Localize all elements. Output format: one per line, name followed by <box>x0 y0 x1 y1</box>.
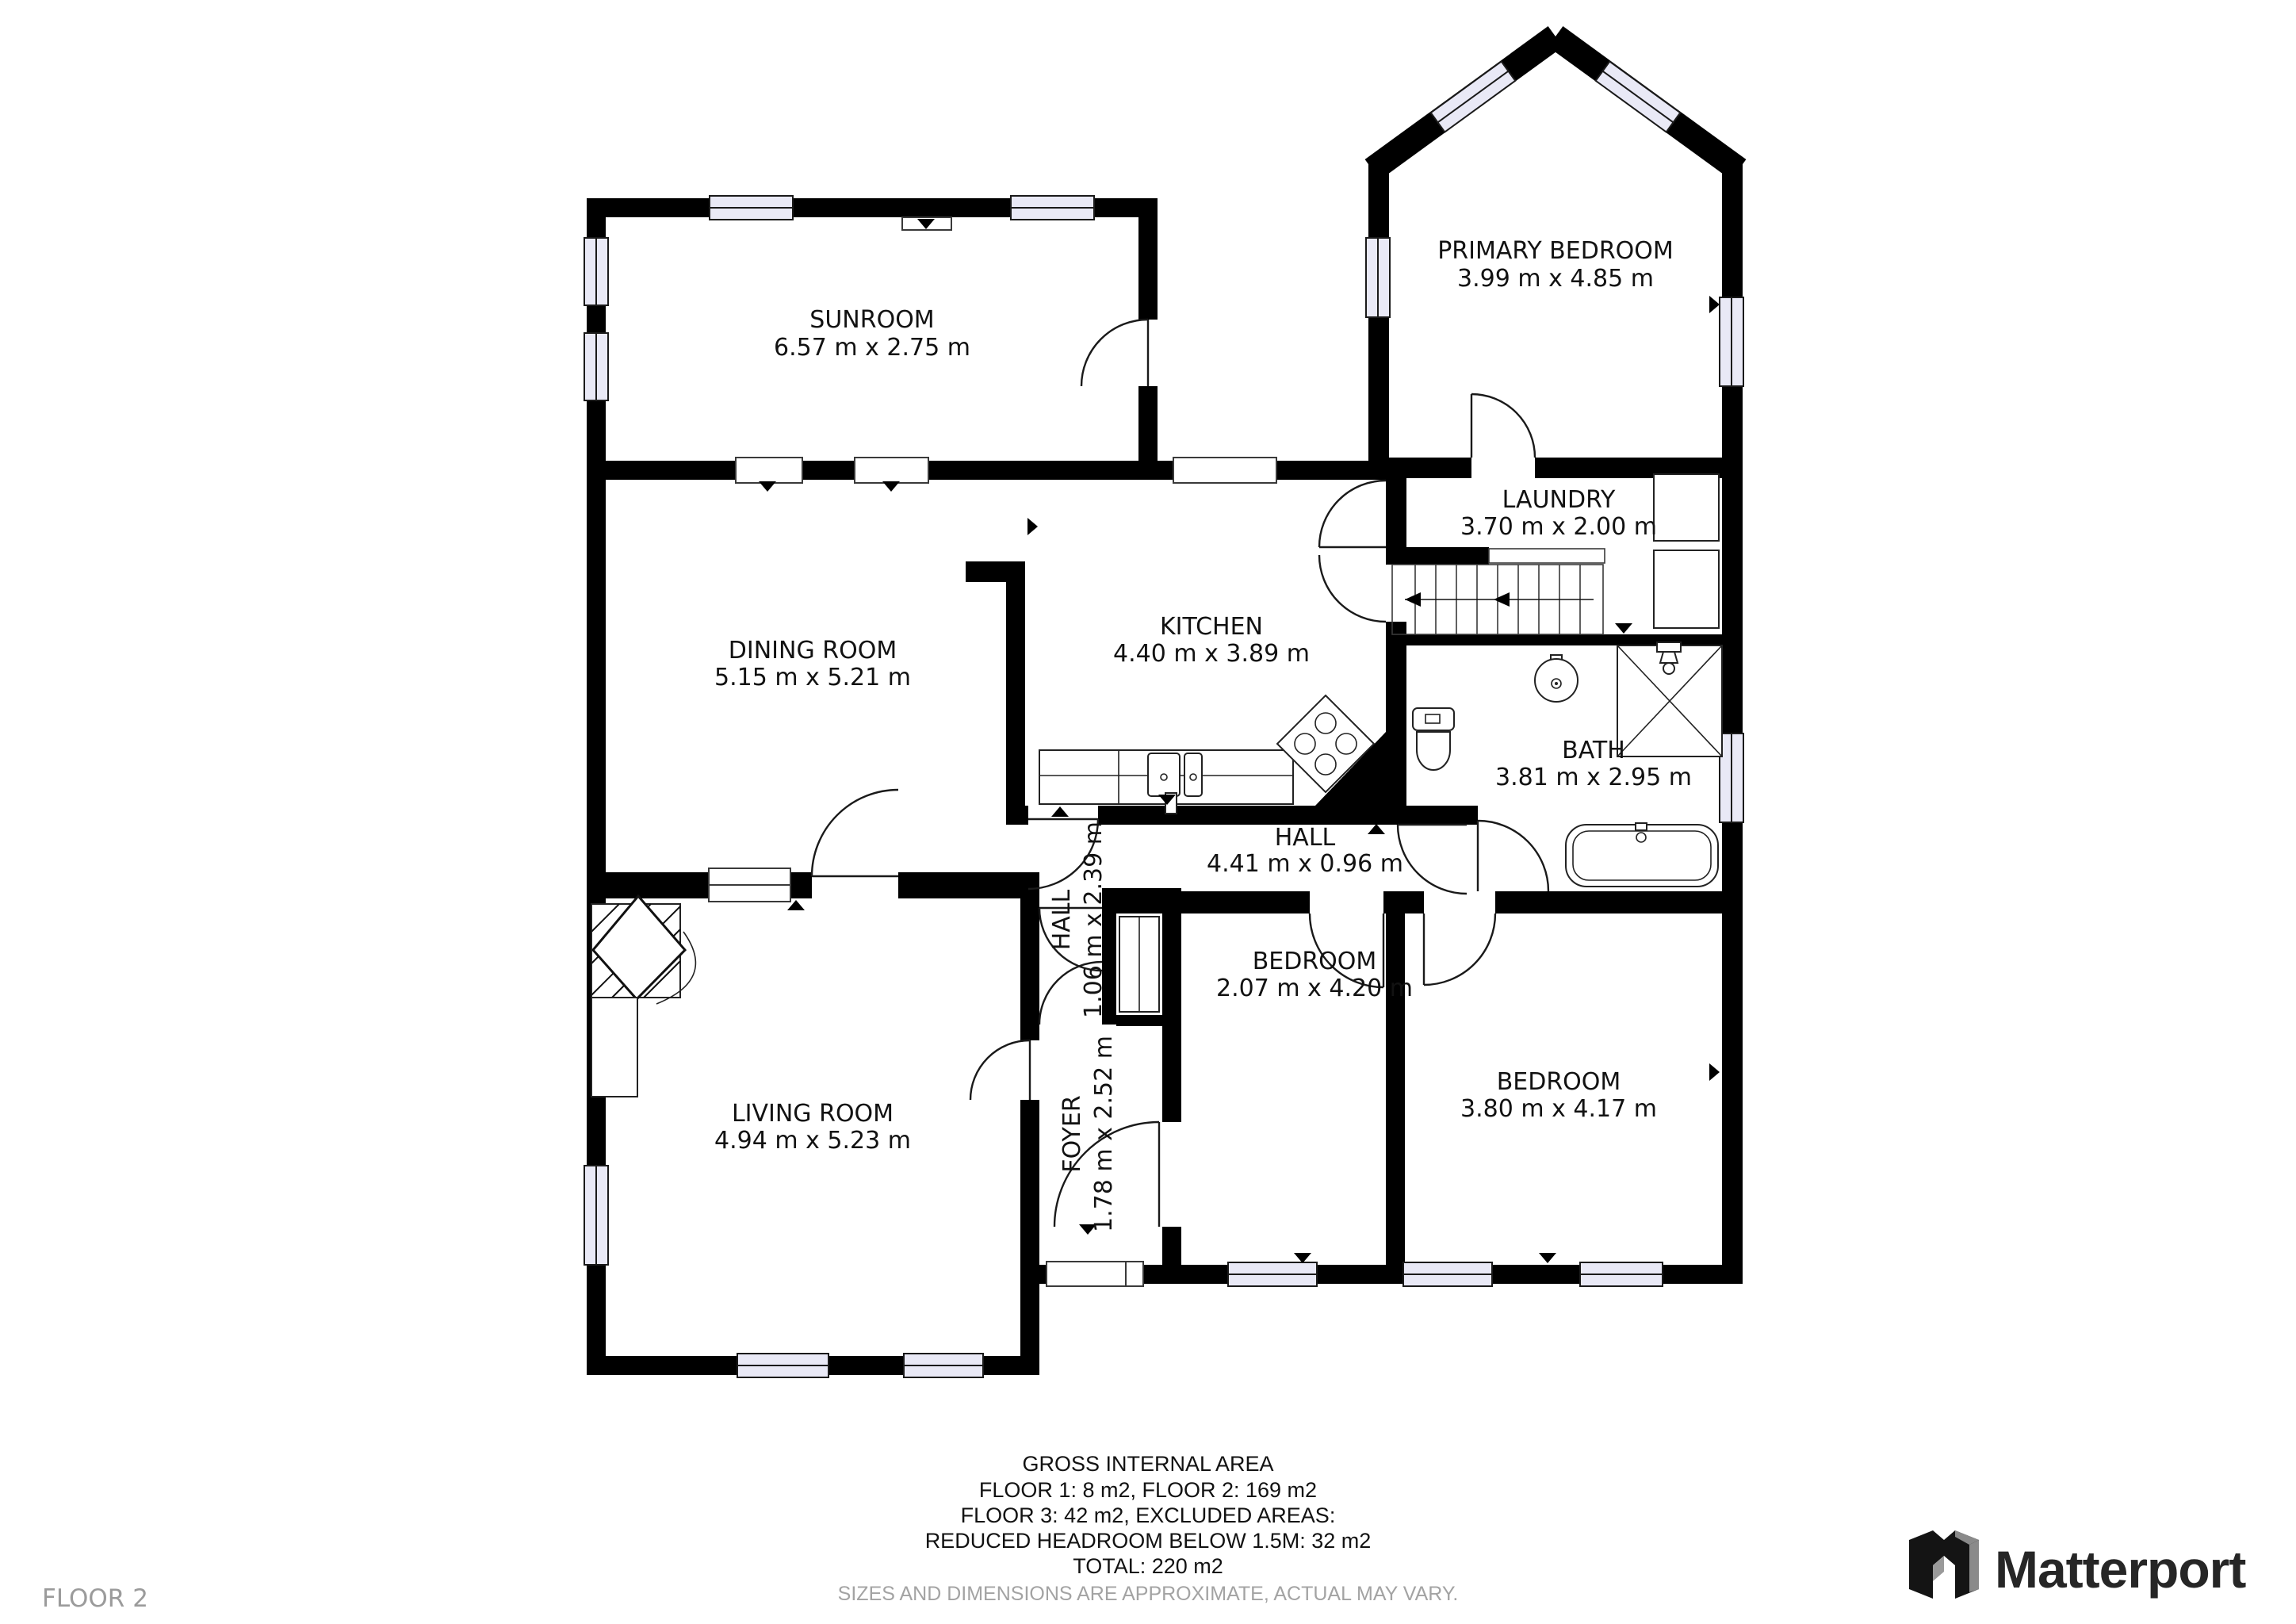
footer-total: TOTAL: 220 m2 <box>1073 1554 1223 1578</box>
room-labels: SUNROOM 6.57 m x 2.75 m PRIMARY BEDROOM … <box>714 237 1692 1232</box>
room-label-hall-vertical: HALL <box>1048 889 1076 950</box>
room-dims-foyer: 1.78 m x 2.52 m <box>1090 1036 1118 1232</box>
footer-headroom: REDUCED HEADROOM BELOW 1.5M: 32 m2 <box>925 1529 1372 1553</box>
laundry-appliances <box>1654 474 1719 628</box>
stairs-direction-arrow <box>1494 592 1510 607</box>
door-kitchen-stairs <box>1319 481 1386 622</box>
room-dims-bedroom-small: 2.07 m x 4.20 m <box>1216 975 1413 1002</box>
room-dims-laundry: 3.70 m x 2.00 m <box>1460 513 1657 541</box>
door-bath <box>1478 821 1548 891</box>
room-label-bedroom-small: BEDROOM <box>1253 948 1377 975</box>
floorplan-svg: SUNROOM 6.57 m x 2.75 m PRIMARY BEDROOM … <box>0 0 2296 1624</box>
footer-title: GROSS INTERNAL AREA <box>1022 1452 1273 1476</box>
room-label-foyer: FOYER <box>1058 1095 1086 1172</box>
room-label-bath: BATH <box>1562 737 1625 764</box>
floorplan-page: SUNROOM 6.57 m x 2.75 m PRIMARY BEDROOM … <box>0 0 2296 1624</box>
room-dims-kitchen: 4.40 m x 3.89 m <box>1113 640 1310 668</box>
stairs-direction-arrow <box>1405 592 1421 607</box>
door-bedroom-large <box>1424 913 1495 985</box>
room-label-dining-room: DINING ROOM <box>729 637 897 665</box>
room-label-bedroom-large: BEDROOM <box>1497 1068 1621 1096</box>
room-dims-primary-bedroom: 3.99 m x 4.85 m <box>1457 265 1654 293</box>
room-label-sunroom: SUNROOM <box>809 306 934 334</box>
footer-area-summary: GROSS INTERNAL AREA FLOOR 1: 8 m2, FLOOR… <box>838 1452 1459 1605</box>
door-living-foyer <box>970 1040 1030 1100</box>
room-dims-living-room: 4.94 m x 5.23 m <box>714 1127 911 1155</box>
bathtub-icon <box>1566 823 1718 887</box>
kitchen-counter <box>1039 750 1293 814</box>
matterport-logo: Matterport <box>1909 1530 2246 1599</box>
floor-label: FLOOR 2 <box>42 1584 148 1613</box>
matterport-logo-text: Matterport <box>1995 1540 2246 1599</box>
closet-shelf <box>1119 917 1159 1012</box>
door-hall-bath-corridor <box>1398 825 1467 894</box>
pedestal-sink-icon <box>1535 655 1578 702</box>
toilet-icon <box>1413 708 1454 770</box>
room-label-hall: HALL <box>1275 824 1336 852</box>
door-living-dining <box>812 790 898 876</box>
gable-walls <box>1372 36 1739 170</box>
room-dims-hall: 4.41 m x 0.96 m <box>1207 850 1403 878</box>
room-label-primary-bedroom: PRIMARY BEDROOM <box>1437 237 1674 265</box>
footer-disclaimer: SIZES AND DIMENSIONS ARE APPROXIMATE, AC… <box>838 1583 1459 1605</box>
door-primary-bedroom <box>1471 394 1535 458</box>
shower-icon <box>1617 642 1722 756</box>
fireplace-icon <box>591 896 695 1097</box>
room-label-living-room: LIVING ROOM <box>732 1100 894 1128</box>
room-dims-bath: 3.81 m x 2.95 m <box>1495 764 1692 791</box>
matterport-logo-icon <box>1909 1530 1979 1599</box>
room-label-kitchen: KITCHEN <box>1160 613 1263 641</box>
footer-floor3: FLOOR 3: 42 m2, EXCLUDED AREAS: <box>961 1503 1336 1527</box>
room-dims-bedroom-large: 3.80 m x 4.17 m <box>1460 1095 1657 1123</box>
footer-floor1-2: FLOOR 1: 8 m2, FLOOR 2: 169 m2 <box>979 1478 1317 1502</box>
room-dims-hall-vertical: 1.06 m x 2.39 m <box>1080 822 1108 1018</box>
room-dims-sunroom: 6.57 m x 2.75 m <box>774 334 970 362</box>
door-sunroom <box>1081 320 1148 386</box>
room-dims-dining-room: 5.15 m x 5.21 m <box>714 664 911 691</box>
room-label-laundry: LAUNDRY <box>1502 486 1616 514</box>
